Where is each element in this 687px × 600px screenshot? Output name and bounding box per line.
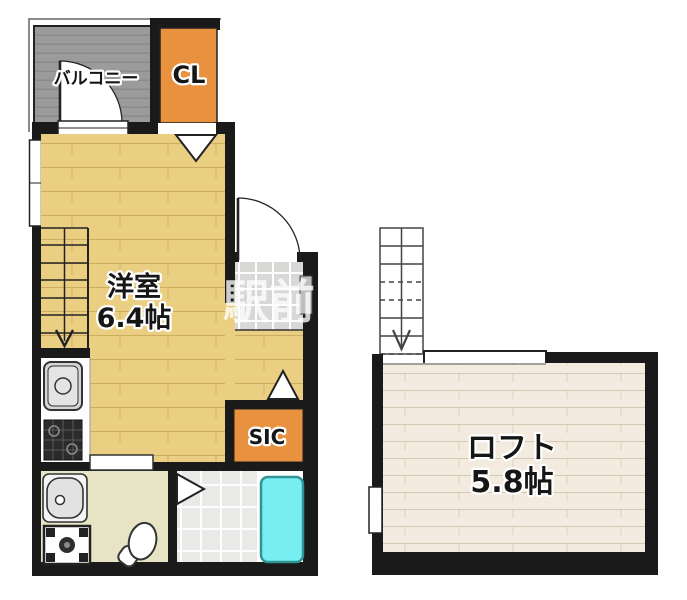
closet-opening xyxy=(158,123,216,134)
wall-segment xyxy=(225,400,318,409)
entrance-door-swing-icon xyxy=(238,198,300,260)
loft-size: 5.8帖 xyxy=(470,465,553,500)
watermark-text: 駅前 xyxy=(223,275,315,329)
wall-segment xyxy=(168,471,177,562)
wall-segment xyxy=(150,18,160,134)
wall-segment xyxy=(645,352,658,552)
washroom-door xyxy=(90,455,153,470)
wall-segment xyxy=(225,400,234,462)
wall-segment xyxy=(126,122,152,134)
wall-segment xyxy=(32,348,90,358)
stairs-down-right-icon xyxy=(380,228,423,354)
bathtub-icon xyxy=(261,477,303,562)
wall-segment xyxy=(32,122,60,134)
loft-window xyxy=(369,487,382,533)
washbasin-icon xyxy=(43,474,87,522)
loft-railing xyxy=(424,351,546,364)
stove-icon xyxy=(44,420,82,460)
wall-segment xyxy=(32,462,318,471)
washing-machine-pan-icon xyxy=(44,526,90,564)
balcony-label: バルコニー xyxy=(54,69,139,89)
floor-plan-canvas: バルコニー CL 洋室 6.4帖 SIC ロフト 5.8帖 駅前 xyxy=(0,0,687,600)
shoe-closet-label: SIC xyxy=(249,425,286,449)
western-room-size: 6.4帖 xyxy=(97,303,172,334)
floor-plan: バルコニー CL 洋室 6.4帖 SIC ロフト 5.8帖 駅前 xyxy=(0,0,687,600)
closet-label: CL xyxy=(173,61,206,89)
wall-segment xyxy=(372,552,658,575)
western-room-label: 洋室 xyxy=(107,271,161,303)
kitchen-sink-icon xyxy=(44,362,82,410)
loft-label: ロフト xyxy=(467,431,557,466)
